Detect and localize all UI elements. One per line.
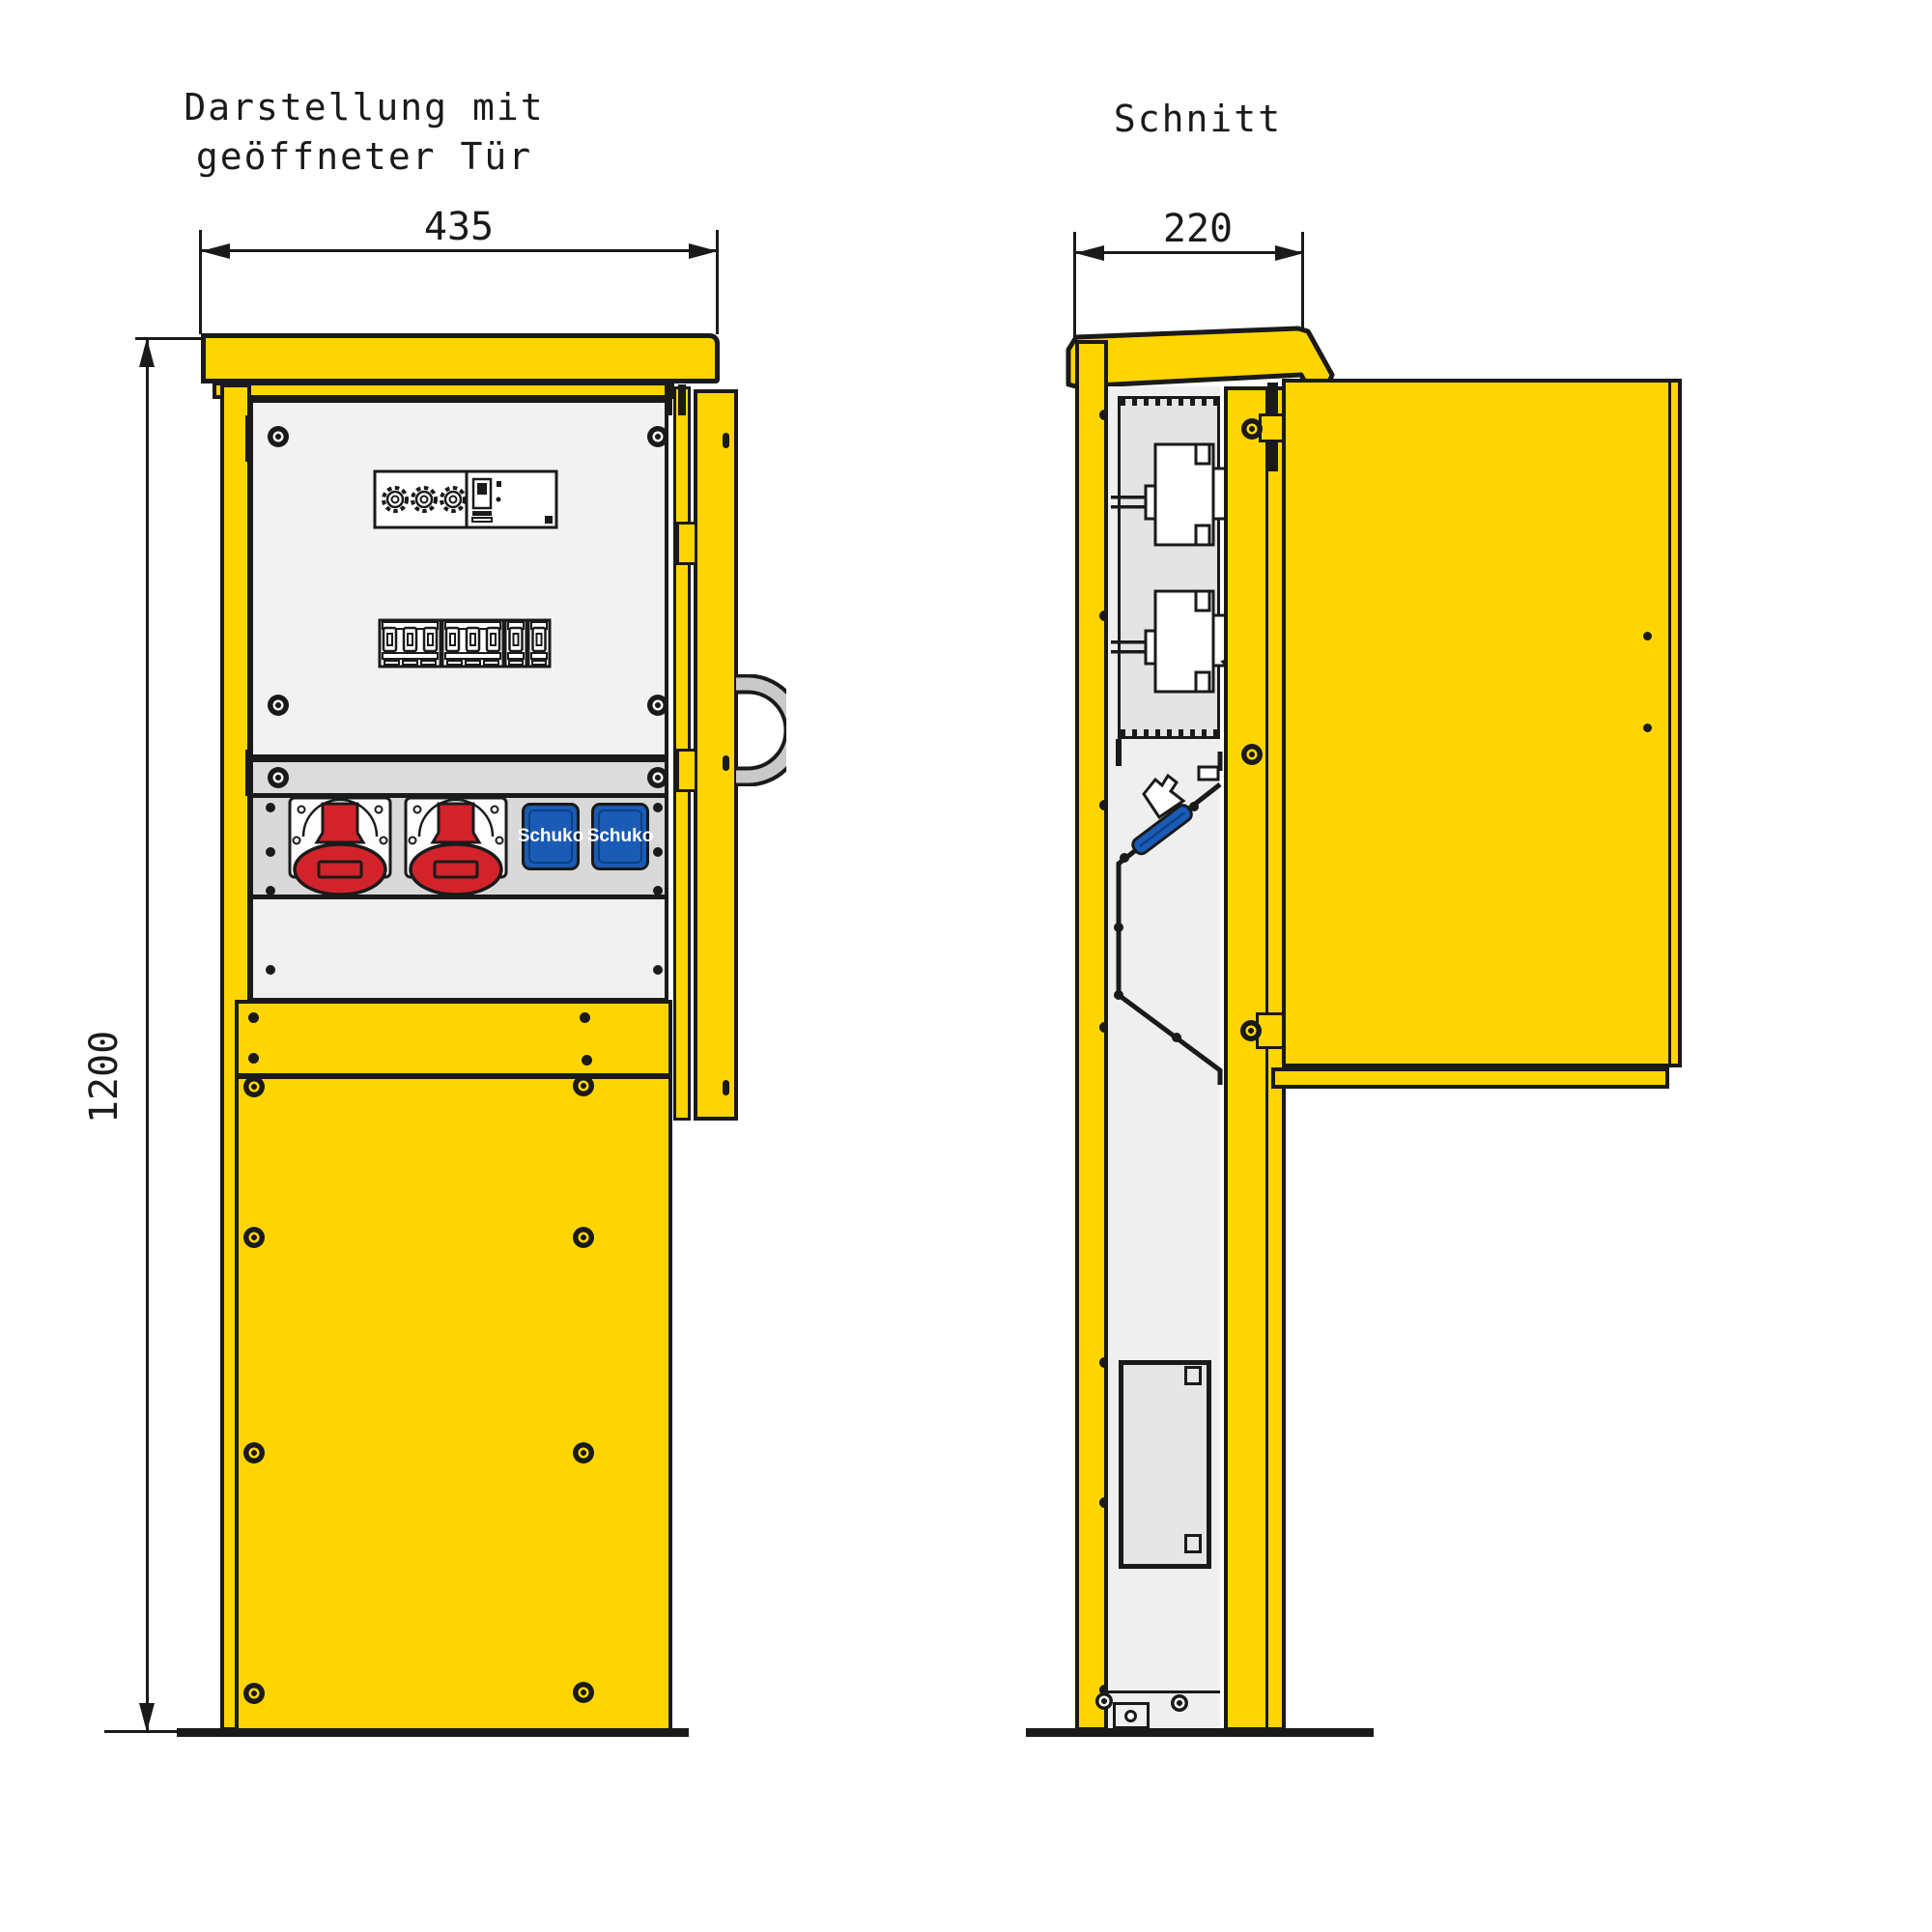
panel-rivet — [243, 1227, 265, 1248]
band-dot — [248, 1053, 259, 1064]
hatch-bottom — [1121, 729, 1217, 736]
schuko-label: Schuko — [518, 826, 584, 847]
front-view-title-line2: geöffneter Tür — [147, 132, 582, 182]
open-door-section — [1282, 379, 1682, 1067]
panel-rivet — [573, 1227, 594, 1248]
panel-screw — [268, 695, 289, 716]
front-upright-section — [1224, 386, 1286, 1731]
band-dot — [248, 1012, 259, 1023]
ground-line-front — [177, 1728, 689, 1737]
foot-hole — [1124, 1710, 1137, 1722]
schuko-label: Schuko — [587, 826, 654, 847]
panel-rivet — [243, 1442, 265, 1463]
mid-yellow-band — [235, 1000, 672, 1077]
strip-screw-dot — [653, 965, 663, 975]
strip-screw-dot — [266, 886, 275, 895]
mid-frame-screw — [1241, 744, 1263, 765]
divider-band — [249, 758, 668, 797]
base-screw — [1171, 1694, 1188, 1712]
schuko-socket-2: Schuko — [591, 803, 649, 870]
strip-screw-dot — [266, 847, 275, 857]
socket-niche-section — [1101, 752, 1232, 1085]
strip-screw-dot — [653, 886, 663, 895]
band-screw — [647, 767, 668, 788]
socket-lower-panel — [249, 895, 668, 1002]
panel-rivet — [573, 1075, 594, 1096]
door-top-hinge-icon — [665, 384, 672, 415]
band-dot — [582, 1055, 592, 1065]
door-bottom-lip — [1271, 1067, 1669, 1089]
front-view-title-line1: Darstellung mit — [147, 83, 582, 132]
breaker-row — [378, 612, 554, 672]
panel-rivet — [573, 1442, 594, 1463]
bottom-hinge-screw — [1240, 1020, 1262, 1041]
schuko-socket-1: Schuko — [522, 803, 580, 870]
door-hinge-tab — [676, 522, 697, 565]
band-dot — [580, 1012, 590, 1023]
panel-screw — [647, 426, 668, 447]
equipment-panel — [249, 399, 668, 758]
band-screw — [268, 767, 289, 788]
roof-front — [201, 333, 720, 384]
panel-screw — [647, 695, 668, 716]
door-top-hinge-icon — [678, 384, 686, 415]
door-screw-dot — [1643, 632, 1652, 640]
strip-screw-dot — [653, 803, 663, 812]
panel-rivet — [243, 1683, 265, 1704]
panel-bracket — [1184, 1366, 1202, 1385]
front-view-title: Darstellung mit geöffneter Tür — [147, 83, 582, 183]
cee-socket-1 — [284, 792, 396, 902]
cee-socket-2 — [400, 792, 512, 902]
top-hinge-screw — [1241, 418, 1263, 440]
panel-rivet — [573, 1682, 594, 1703]
door-slot — [723, 1080, 729, 1095]
strip-screw-dot — [266, 965, 275, 975]
meter-unit — [373, 469, 558, 529]
hatch-top — [1121, 399, 1217, 406]
lower-front-panel — [235, 1075, 672, 1732]
panel-bracket — [1184, 1534, 1202, 1553]
door-screw-dot — [1643, 724, 1652, 732]
base-line — [1108, 1690, 1220, 1693]
base-screw — [1095, 1692, 1113, 1710]
technical-drawing-canvas: Darstellung mit geöffneter Tür 435 1200 — [0, 0, 1932, 1932]
door-handle — [732, 674, 786, 786]
door-slot — [723, 433, 729, 448]
front-view: Darstellung mit geöffneter Tür 435 1200 — [0, 0, 966, 1932]
dimension-height-label: 1200 — [82, 1031, 127, 1123]
door-edge-fold-line — [1668, 383, 1671, 1064]
panel-screw — [268, 426, 289, 447]
dimension-depth-label: 220 — [1101, 207, 1294, 251]
section-view-title: Schnitt — [1053, 95, 1343, 144]
door-slot — [723, 755, 729, 771]
panel-rivet — [243, 1076, 265, 1097]
roof-lip — [213, 382, 674, 399]
strip-screw-dot — [266, 803, 275, 812]
strip-screw-dot — [653, 847, 663, 857]
dimension-width-label: 435 — [362, 205, 555, 249]
front-upright-line — [1265, 389, 1268, 1728]
ground-line-section — [1026, 1728, 1374, 1737]
section-view: Schnitt 220 — [966, 0, 1932, 1932]
door-hinge-tab — [676, 749, 697, 792]
